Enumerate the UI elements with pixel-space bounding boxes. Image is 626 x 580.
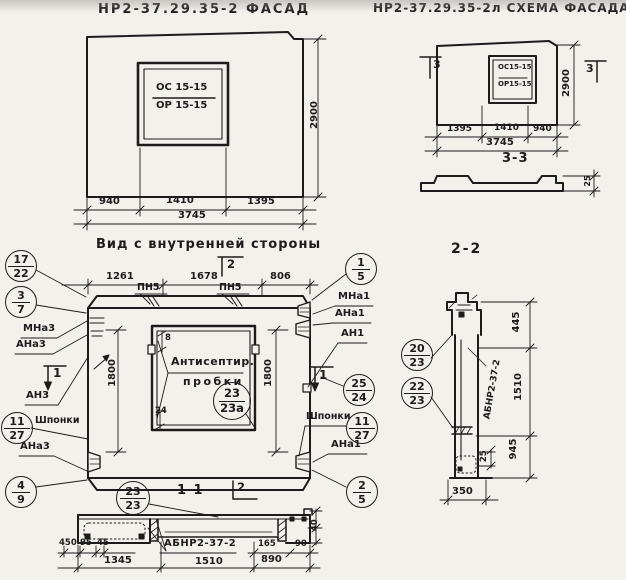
- callout-bottom: 23а: [220, 403, 244, 415]
- section-3-3-title: 3-3: [502, 152, 529, 165]
- s11-dim-45: 45: [97, 539, 109, 548]
- callout-top: 23: [219, 388, 245, 402]
- callout-bottom: 27: [354, 430, 369, 441]
- keys-label-left: Шпонки: [35, 416, 80, 426]
- label-an3: АН3: [26, 391, 49, 401]
- callout-bottom: 5: [357, 271, 365, 282]
- label-mna3-top: МНа3: [23, 324, 55, 334]
- section-1-1-block-label: АБНР2-37-2: [164, 539, 236, 549]
- label-ana3-bottom: АНа3: [20, 442, 50, 452]
- s11-dim-1510: 1510: [195, 557, 223, 567]
- scheme-dim-1395: 1395: [447, 125, 472, 134]
- label-mna1-top: МНа1: [338, 292, 370, 302]
- callout-23-23: 23 23: [116, 481, 150, 515]
- callout-top: 11: [4, 416, 29, 429]
- facade-dim-1395: 1395: [247, 197, 275, 207]
- s22-dim-350: 350: [452, 487, 473, 497]
- facade-window-mark-bottom: ОР 15-15: [156, 101, 207, 111]
- keys-label-right: Шпонки: [306, 412, 351, 422]
- callout-bottom: 22: [13, 268, 28, 279]
- s11-dim-165: 165: [258, 540, 276, 549]
- s11-dim-890: 890: [261, 555, 282, 565]
- callout-bottom: 27: [9, 430, 24, 441]
- callout-top: 25: [346, 378, 371, 391]
- inner-view-title: Вид с внутренней стороны: [96, 238, 321, 251]
- facade-dim-height: 2900: [310, 96, 320, 134]
- callout-bottom: 23: [409, 395, 424, 406]
- inner-dim-1261: 1261: [106, 272, 134, 282]
- callout-top: 11: [349, 416, 374, 429]
- inner-dim-806: 806: [270, 272, 291, 282]
- scheme-section-flag-right: 3: [586, 63, 594, 74]
- facade-dim-1410: 1410: [166, 196, 194, 206]
- scheme-section-flag-left: 3: [433, 59, 441, 70]
- s22-dim-1510: 1510: [514, 366, 524, 408]
- callout-11-27-right: 11 27: [346, 412, 378, 444]
- callout-top: 3: [12, 290, 30, 303]
- facade-window-mark-top: ОС 15-15: [156, 83, 207, 93]
- inner-pn5-left-label: ПН5: [137, 283, 160, 293]
- callout-top: 17: [8, 254, 33, 267]
- s22-dim-945: 945: [509, 432, 519, 466]
- callout-top: 2: [353, 480, 371, 493]
- inner-flag-1-left: 1: [53, 367, 61, 379]
- callout-top: 22: [404, 381, 429, 394]
- inner-dim-1800-left: 1800: [108, 355, 118, 391]
- inner-corner-dim-top: 8: [165, 334, 171, 343]
- label-an1: АН1: [341, 329, 364, 339]
- facade-dim-total: 3745: [178, 211, 206, 221]
- s11-dim-40: 40: [311, 513, 320, 537]
- label-ana1-top: АНа1: [335, 309, 365, 319]
- callout-top: 20: [404, 343, 429, 356]
- drawing-linework: [0, 0, 626, 580]
- callout-top: 4: [12, 480, 30, 493]
- s11-dim-1345: 1345: [104, 556, 132, 566]
- inner-flag-2-top: 2: [227, 259, 235, 271]
- blueprint-page: НР2-37.29.35-2 ФАСАД ОС 15-15 ОР 15-15 9…: [0, 0, 626, 580]
- section-3-3-thickness-dim: 25: [584, 170, 592, 192]
- callout-20-23: 20 23: [401, 339, 433, 371]
- callout-bottom: 9: [17, 494, 25, 505]
- scheme-window-mark-top: ОС15-15: [498, 64, 531, 71]
- s11-dim-90: 90: [295, 540, 307, 549]
- scheme-dim-940: 940: [533, 125, 552, 134]
- inner-corner-dim-bottom: 24: [155, 407, 167, 416]
- callout-22-23: 22 23: [401, 377, 433, 409]
- section-1-1-title: 1-1: [177, 484, 204, 497]
- callout-1-5: 1 5: [345, 253, 377, 285]
- antiseptic-note-line1: Антисептир.: [171, 356, 254, 367]
- facade-dim-940: 940: [99, 197, 120, 207]
- inner-dim-1678: 1678: [190, 272, 218, 282]
- callout-bottom: 24: [351, 392, 366, 403]
- inner-flag-1-right: 1: [319, 369, 327, 381]
- s22-dim-25: 25: [480, 445, 489, 467]
- scheme-dim-1410: 1410: [494, 124, 519, 133]
- s22-dim-445: 445: [512, 305, 522, 339]
- section-2-2-title: 2-2: [451, 242, 482, 256]
- callout-23-23a: 23 23а: [213, 382, 251, 420]
- label-ana3-top: АНа3: [16, 340, 46, 350]
- inner-pn5-right-label: ПН5: [219, 283, 242, 293]
- callout-25-24: 25 24: [343, 374, 375, 406]
- scheme-title: НР2-37.29.35-2л СХЕМА ФАСАДА: [373, 2, 626, 14]
- callout-bottom: 23: [409, 357, 424, 368]
- callout-4-9: 4 9: [5, 476, 37, 508]
- scheme-window-mark-bottom: ОР15-15: [498, 81, 531, 88]
- s11-dim-95: 95: [80, 539, 92, 548]
- inner-dim-1800-right: 1800: [264, 355, 274, 391]
- callout-bottom: 23: [125, 500, 140, 511]
- callout-bottom: 5: [358, 494, 366, 505]
- callout-bottom: 7: [17, 304, 25, 315]
- scheme-dim-height: 2900: [562, 64, 572, 102]
- callout-3-7: 3 7: [5, 286, 37, 318]
- callout-top: 1: [352, 257, 370, 270]
- callout-17-22: 17 22: [5, 250, 37, 282]
- s11-dim-450: 450: [59, 539, 77, 548]
- callout-2-5: 2 5: [346, 476, 378, 508]
- scheme-dim-total: 3745: [486, 138, 514, 148]
- callout-11-27-left: 11 27: [1, 412, 33, 444]
- callout-top: 23: [120, 486, 145, 499]
- facade-title: НР2-37.29.35-2 ФАСАД: [98, 3, 310, 16]
- section-1-1-flag-2: 2: [237, 482, 245, 494]
